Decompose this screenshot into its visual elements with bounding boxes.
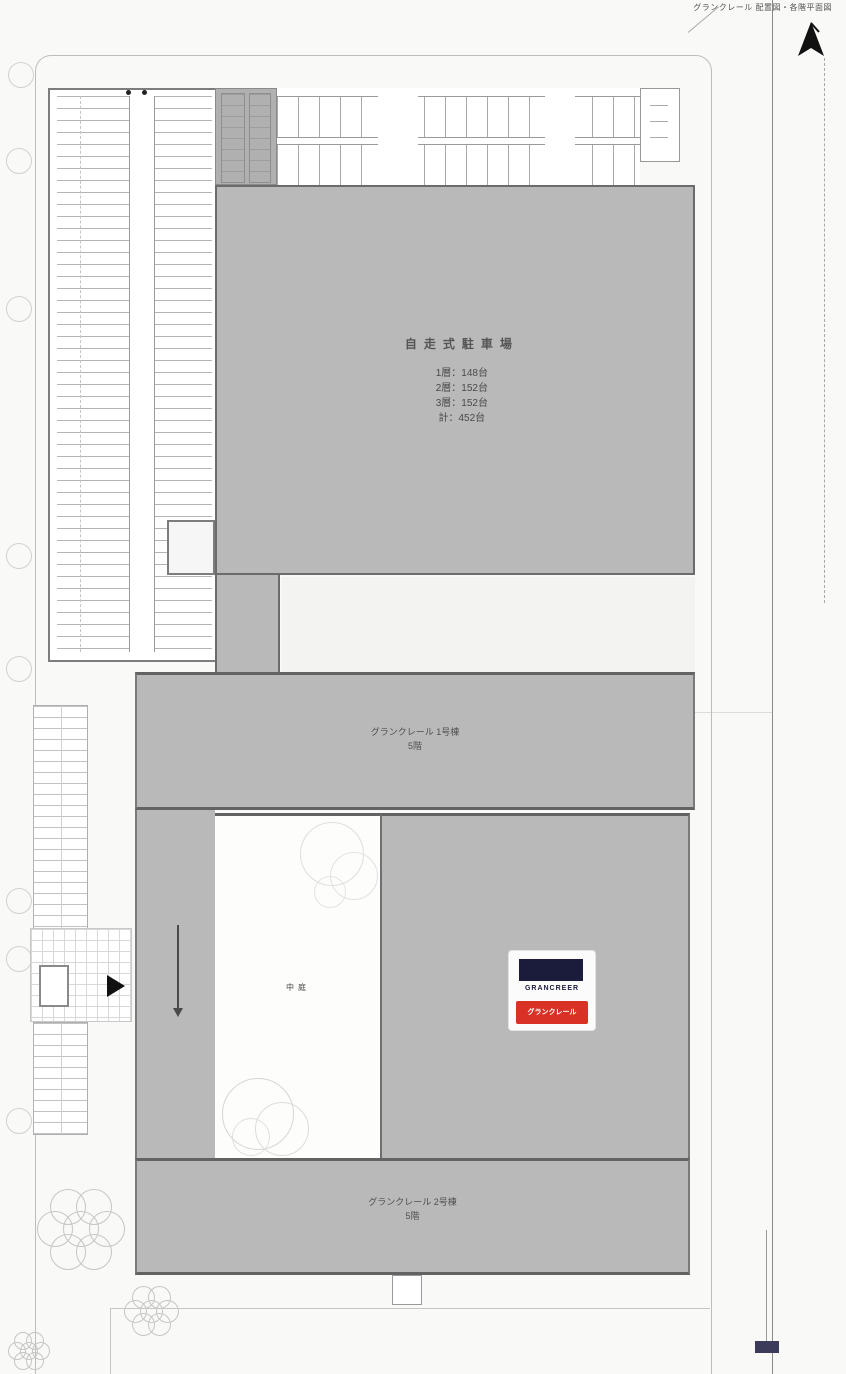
tree-rosette-icon: [38, 1186, 122, 1270]
garage-legend-row: 3層：152台: [405, 396, 519, 411]
building1-name: グランクレール 1号棟: [137, 725, 693, 739]
post-marker: [126, 90, 131, 95]
bush-icon: [6, 888, 32, 914]
bush-icon: [6, 946, 32, 972]
courtyard: 中庭: [215, 813, 380, 1158]
gate-post-marker: [39, 965, 69, 1007]
driveway-gap: [545, 88, 575, 185]
building2-wing: グランクレール 2号棟 5階: [135, 1158, 690, 1275]
north-arrow-icon: [794, 20, 828, 65]
building3-wing: GRANCREER グランクレール: [380, 813, 690, 1158]
mid-left-wing: [135, 810, 215, 1158]
garage-legend: 自走式駐車場 1層：148台 2層：152台 3層：152台 計：452台: [405, 335, 519, 426]
building2-floors: 5階: [137, 1209, 688, 1223]
bush-icon: [6, 148, 32, 174]
building2-name: グランクレール 2号棟: [137, 1195, 688, 1209]
entrance-arrow-icon: [107, 975, 125, 997]
benchmark-line: [766, 1230, 767, 1341]
parking-stall-column: [57, 96, 130, 652]
bush-icon: [6, 296, 32, 322]
site-plan-canvas: グランクレール 配置図・各階平面図: [0, 0, 846, 1374]
top-parking-gray-block: [215, 88, 277, 185]
garage-legend-row: 1層：148台: [405, 366, 519, 381]
road-edge-line: [772, 0, 773, 1374]
ramp-arrow-icon: [177, 925, 179, 1010]
tree-rosette-icon: [124, 1284, 176, 1336]
courtyard-label: 中庭: [273, 982, 323, 993]
road-dashed-line: [824, 58, 825, 603]
tree-icon: [314, 876, 346, 908]
logo-wordmark: GRANCREER: [513, 985, 591, 992]
bike-parking-strip: [33, 705, 88, 930]
strip-center-line: [61, 1023, 62, 1134]
brand-logo-block: GRANCREER グランクレール: [509, 951, 595, 1030]
service-strip: [282, 577, 695, 672]
bottom-boundary-line: [110, 1308, 111, 1374]
garage-legend-row: 計：452台: [405, 411, 519, 426]
ramp-arrow-head-icon: [173, 1008, 183, 1017]
building1-label: グランクレール 1号棟 5階: [137, 725, 693, 753]
stall-row: [277, 144, 640, 186]
bush-icon: [8, 62, 34, 88]
building1-wing: グランクレール 1号棟 5階: [135, 672, 695, 810]
tree-icon: [232, 1118, 270, 1156]
drawing-caption: グランクレール 配置図・各階平面図: [693, 2, 832, 13]
stall-sub-column: [249, 93, 271, 183]
strip-center-line: [61, 706, 62, 929]
logo-red-banner: グランクレール: [516, 1001, 588, 1024]
logo-navy-bar: [519, 959, 583, 981]
top-parking-strip: [277, 88, 640, 185]
garage-building: 自走式駐車場 1層：148台 2層：152台 3層：152台 計：452台: [215, 185, 695, 575]
building1-floors: 5階: [137, 739, 693, 753]
connector-block: [215, 575, 280, 675]
stall-sub-column: [221, 93, 245, 183]
entrance-step-box: [392, 1275, 422, 1305]
bush-icon: [6, 543, 32, 569]
left-parking-building: [48, 88, 219, 662]
post-marker: [142, 90, 147, 95]
annex-box: [167, 520, 215, 575]
stall-row: [277, 96, 640, 138]
building2-label: グランクレール 2号棟 5階: [137, 1195, 688, 1223]
benchmark-mark: [755, 1341, 779, 1353]
bush-icon: [6, 656, 32, 682]
entrance-plaza: [30, 928, 132, 1022]
bush-icon: [6, 1108, 32, 1134]
utility-box: [640, 88, 680, 162]
garage-legend-title: 自走式駐車場: [405, 335, 519, 352]
driveway-gap: [378, 88, 418, 185]
garage-legend-row: 2層：152台: [405, 381, 519, 396]
bottom-boundary-line: [110, 1308, 710, 1309]
stall-guide-line: [80, 96, 81, 652]
tree-rosette-icon: [8, 1330, 48, 1370]
bike-parking-strip: [33, 1022, 88, 1135]
